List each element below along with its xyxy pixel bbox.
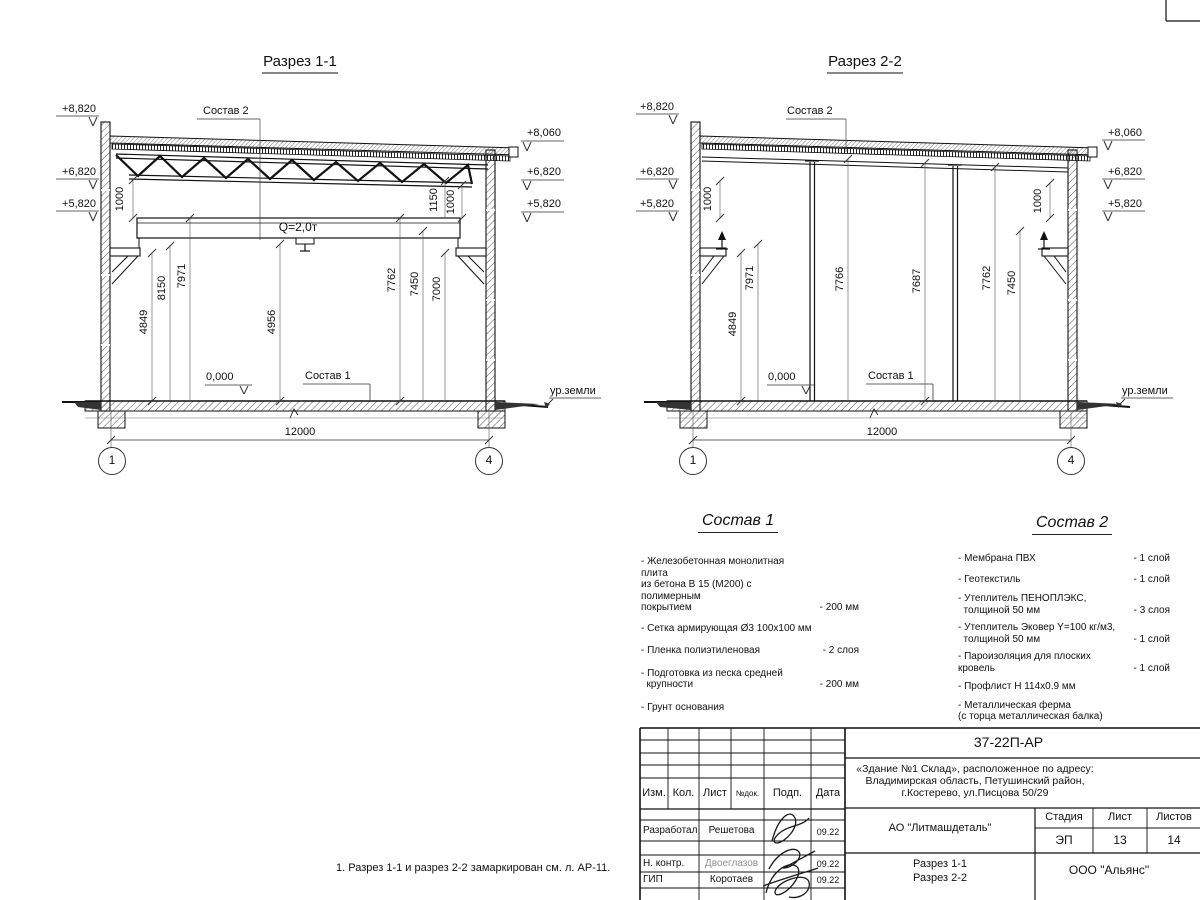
sheets-label: Листов	[1147, 811, 1200, 824]
item-line: толщиной 50 мм	[958, 605, 1086, 617]
dim-label: 7762	[386, 252, 398, 308]
titleblock-header-podp: Подп.	[764, 787, 811, 800]
sheet-title-line: Разрез 1-1	[845, 858, 1035, 871]
item-line: - Профлист Н 114х0.9 мм	[958, 681, 1076, 693]
titleblock-header-data: Дата	[811, 787, 845, 800]
item-line: покрытием	[641, 602, 813, 614]
elevation-mark: +8,820	[54, 103, 96, 115]
titleblock-date: 09.22	[811, 875, 845, 885]
ground-level-label: ур.земли	[1122, 385, 1168, 397]
dim-label: 7000	[431, 261, 443, 317]
section-2-title: Разрез 2-2	[815, 54, 915, 71]
span-dim-label: 12000	[262, 426, 338, 438]
dim-label: 1000	[114, 171, 126, 227]
axis-bubble-label: 4	[1061, 454, 1081, 467]
elevation-mark: +6,820	[632, 166, 674, 178]
dim-label: 8150	[156, 260, 168, 316]
elevation-mark: +5,820	[527, 198, 561, 210]
elevation-mark: +5,820	[632, 198, 674, 210]
axis-bubble-label: 4	[479, 454, 499, 467]
roof-composition-callout: Состав 2	[203, 105, 249, 117]
design-org: ООО "Альянс"	[1035, 864, 1183, 878]
dim-label: 7687	[911, 253, 923, 309]
item-value: - 200 мм	[814, 679, 859, 691]
item-line: крупности	[641, 679, 783, 691]
list-item: - Пленка полиэтиленовая - 2 слоя	[641, 645, 859, 657]
section-2-annotations	[636, 114, 1173, 475]
item-value: - 1 слой	[1127, 634, 1170, 646]
item-value: - 1 слой	[1127, 553, 1170, 565]
elevation-mark: +5,820	[1108, 198, 1142, 210]
list-item: - Утеплитель Эковер Y=100 кг/м3, толщино…	[958, 622, 1170, 645]
item-value: - 2 слоя	[817, 645, 859, 657]
ground-level-label: ур.земли	[550, 385, 596, 397]
list-item: - Грунт основания	[641, 702, 859, 714]
titleblock-header-izm: Изм.	[640, 787, 668, 800]
dim-label: 1000	[1032, 173, 1044, 229]
elevation-mark: +8,060	[1108, 127, 1142, 139]
document-number: 37-22П-АР	[845, 734, 1172, 750]
client-company: АО "Литмашдеталь"	[845, 822, 1035, 835]
floor-composition-callout: Состав 1	[305, 370, 351, 382]
signature-strokes	[763, 814, 818, 897]
composition-1-list: - Железобетонная монолитная плита из бет…	[641, 556, 859, 713]
zero-level-label: 0,000	[206, 371, 234, 383]
roof-composition-callout: Состав 2	[787, 105, 833, 117]
list-item: - Геотекстиль - 1 слой	[958, 574, 1170, 586]
item-value: - 1 слой	[1127, 574, 1170, 586]
sheets-total: 14	[1147, 834, 1200, 848]
section-1-title: Разрез 1-1	[250, 54, 350, 71]
titleblock-role: Разработал	[643, 825, 697, 837]
titleblock-role: Н. контр.	[643, 858, 684, 870]
titleblock-role: ГИП	[643, 874, 663, 886]
drawing-sheet: Разрез 1-1 +8,820 +6,820 +5,820 +8,060 +…	[0, 0, 1200, 900]
item-value: - 200 мм	[814, 602, 859, 614]
dim-label: 4956	[266, 294, 278, 350]
titleblock-name: Коротаев	[699, 874, 764, 886]
item-line: толщиной 50 мм	[958, 634, 1115, 646]
axis-bubble-label: 1	[102, 454, 122, 467]
elevation-mark: +6,820	[527, 166, 561, 178]
item-value: - 3 слоя	[1128, 605, 1170, 617]
composition-2-list: - Мембрана ПВХ - 1 слой - Геотекстиль - …	[958, 553, 1170, 723]
frame-corner	[1166, 0, 1200, 21]
item-line: - Мембрана ПВХ	[958, 553, 1036, 565]
dim-label: 7971	[744, 250, 756, 306]
dim-label: 4849	[138, 294, 150, 350]
sheet-label: Лист	[1093, 811, 1147, 824]
item-line: - Сетка армирующая Ø3 100х100 мм	[641, 623, 812, 635]
elevation-mark: +8,060	[527, 127, 561, 139]
dim-label: 7450	[1006, 255, 1018, 311]
titleblock-date: 09.22	[811, 827, 845, 837]
dim-label: 1000	[445, 174, 457, 230]
list-item: - Пароизоляция для плоских кровель - 1 с…	[958, 651, 1170, 674]
item-line: - Железобетонная монолитная плита	[641, 556, 813, 579]
list-item: - Профлист Н 114х0.9 мм	[958, 681, 1170, 693]
dim-label: 1000	[702, 171, 714, 227]
titleblock-name: Решетова	[699, 825, 764, 837]
dim-label: 4849	[727, 296, 739, 352]
composition-2-title: Состав 2	[1032, 514, 1112, 535]
list-item: - Мембрана ПВХ - 1 слой	[958, 553, 1170, 565]
titleblock-header-ndok: №док.	[731, 789, 764, 798]
list-item: - Сетка армирующая Ø3 100х100 мм	[641, 623, 859, 635]
item-line: - Геотекстиль	[958, 574, 1021, 586]
item-value: - 1 слой	[1127, 663, 1170, 675]
item-line: из бетона В 15 (М200) с полимерным	[641, 579, 813, 602]
item-line: (с торца металлическая балка)	[958, 711, 1103, 723]
item-line: - Пароизоляция для плоских кровель	[958, 651, 1127, 674]
span-dim-label: 12000	[844, 426, 920, 438]
floor-composition-callout: Состав 1	[868, 370, 914, 382]
list-item: - Металлическая ферма (с торца металличе…	[958, 700, 1170, 723]
titleblock-header-kol: Кол.	[668, 787, 699, 800]
list-item: - Утеплитель ПЕНОПЛЭКС, толщиной 50 мм -…	[958, 593, 1170, 616]
item-line: - Подготовка из песка средней	[641, 668, 783, 680]
item-line: - Пленка полиэтиленовая	[641, 645, 760, 657]
elevation-mark: +6,820	[1108, 166, 1142, 178]
item-line: - Утеплитель ПЕНОПЛЭКС,	[958, 593, 1086, 605]
item-line: - Утеплитель Эковер Y=100 кг/м3,	[958, 622, 1115, 634]
list-item: - Подготовка из песка средней крупности …	[641, 668, 859, 691]
stage-label: Стадия	[1035, 811, 1093, 824]
axis-bubble-label: 1	[683, 454, 703, 467]
object-address-line: Владимирская область, Петушинский район,	[845, 775, 1105, 787]
crane-capacity-label: Q=2,0т	[268, 221, 328, 234]
elevation-mark: +6,820	[54, 166, 96, 178]
sheet-number: 13	[1093, 834, 1147, 848]
stage-value: ЭП	[1035, 834, 1093, 848]
elevation-mark: +8,820	[632, 101, 674, 113]
item-line: - Грунт основания	[641, 702, 724, 714]
dim-label: 7762	[981, 250, 993, 306]
sheet-title-line: Разрез 2-2	[845, 872, 1035, 885]
composition-1-title: Состав 1	[698, 512, 778, 533]
elevation-mark: +5,820	[54, 198, 96, 210]
item-line: - Металлическая ферма	[958, 700, 1103, 712]
titleblock-date: 09.22	[811, 859, 845, 869]
object-address-line: «Здание №1 Склад», расположенное по адре…	[845, 763, 1105, 775]
titleblock-header-list: Лист	[699, 787, 731, 800]
dim-label: 7766	[834, 251, 846, 307]
dim-label: 7450	[409, 256, 421, 312]
object-address-line: г.Костерево, ул.Писцова 50/29	[845, 787, 1105, 799]
dim-label: 1150	[428, 172, 440, 228]
list-item: - Железобетонная монолитная плита из бет…	[641, 556, 859, 614]
dim-label: 7971	[176, 248, 188, 304]
sheet-note: 1. Разрез 1-1 и разрез 2-2 замаркирован …	[336, 862, 610, 874]
zero-level-label: 0,000	[768, 371, 796, 383]
titleblock-name: Двоеглазов	[699, 858, 764, 870]
